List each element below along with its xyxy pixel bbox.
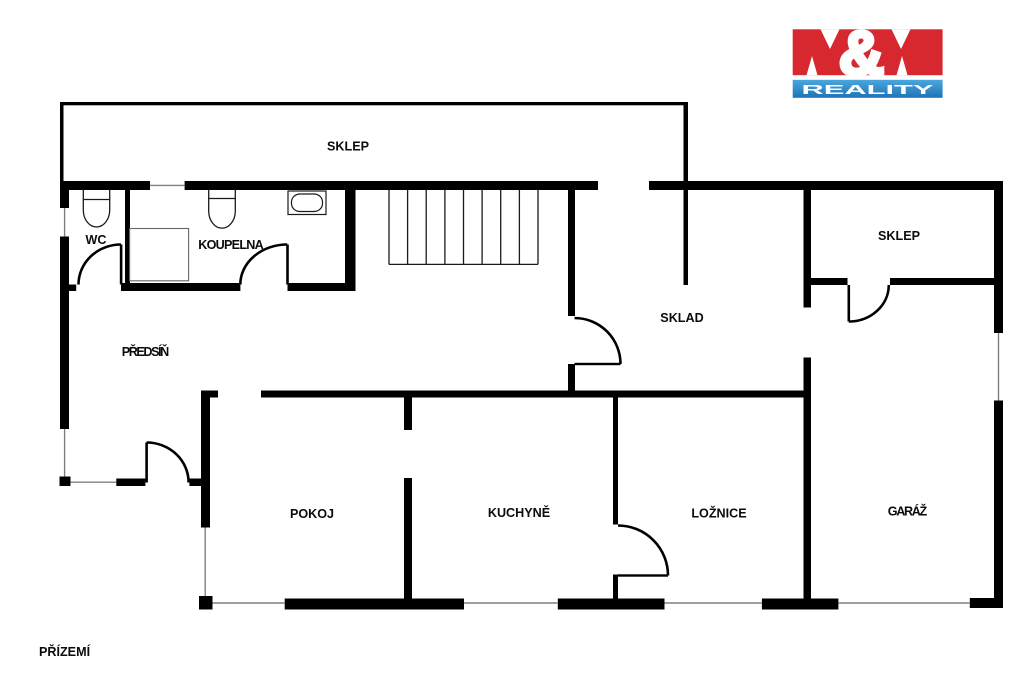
svg-text:PŘÍZEMÍ: PŘÍZEMÍ xyxy=(39,644,91,659)
svg-text:SKLEP: SKLEP xyxy=(327,140,369,154)
svg-text:REALITY: REALITY xyxy=(802,82,934,97)
svg-text:SKLAD: SKLAD xyxy=(660,311,703,325)
svg-text:POKOJ: POKOJ xyxy=(290,507,334,521)
svg-text:KOUPELNA: KOUPELNA xyxy=(198,238,264,252)
svg-text:SKLEP: SKLEP xyxy=(878,229,920,243)
svg-text:&: & xyxy=(839,19,885,89)
svg-text:GARÁŽ: GARÁŽ xyxy=(888,504,928,519)
svg-text:WC: WC xyxy=(86,233,107,247)
svg-text:KUCHYNĚ: KUCHYNĚ xyxy=(488,505,550,520)
svg-text:LOŽNICE: LOŽNICE xyxy=(691,506,746,521)
svg-text:PŘEDSÍŇ: PŘEDSÍŇ xyxy=(122,344,170,359)
